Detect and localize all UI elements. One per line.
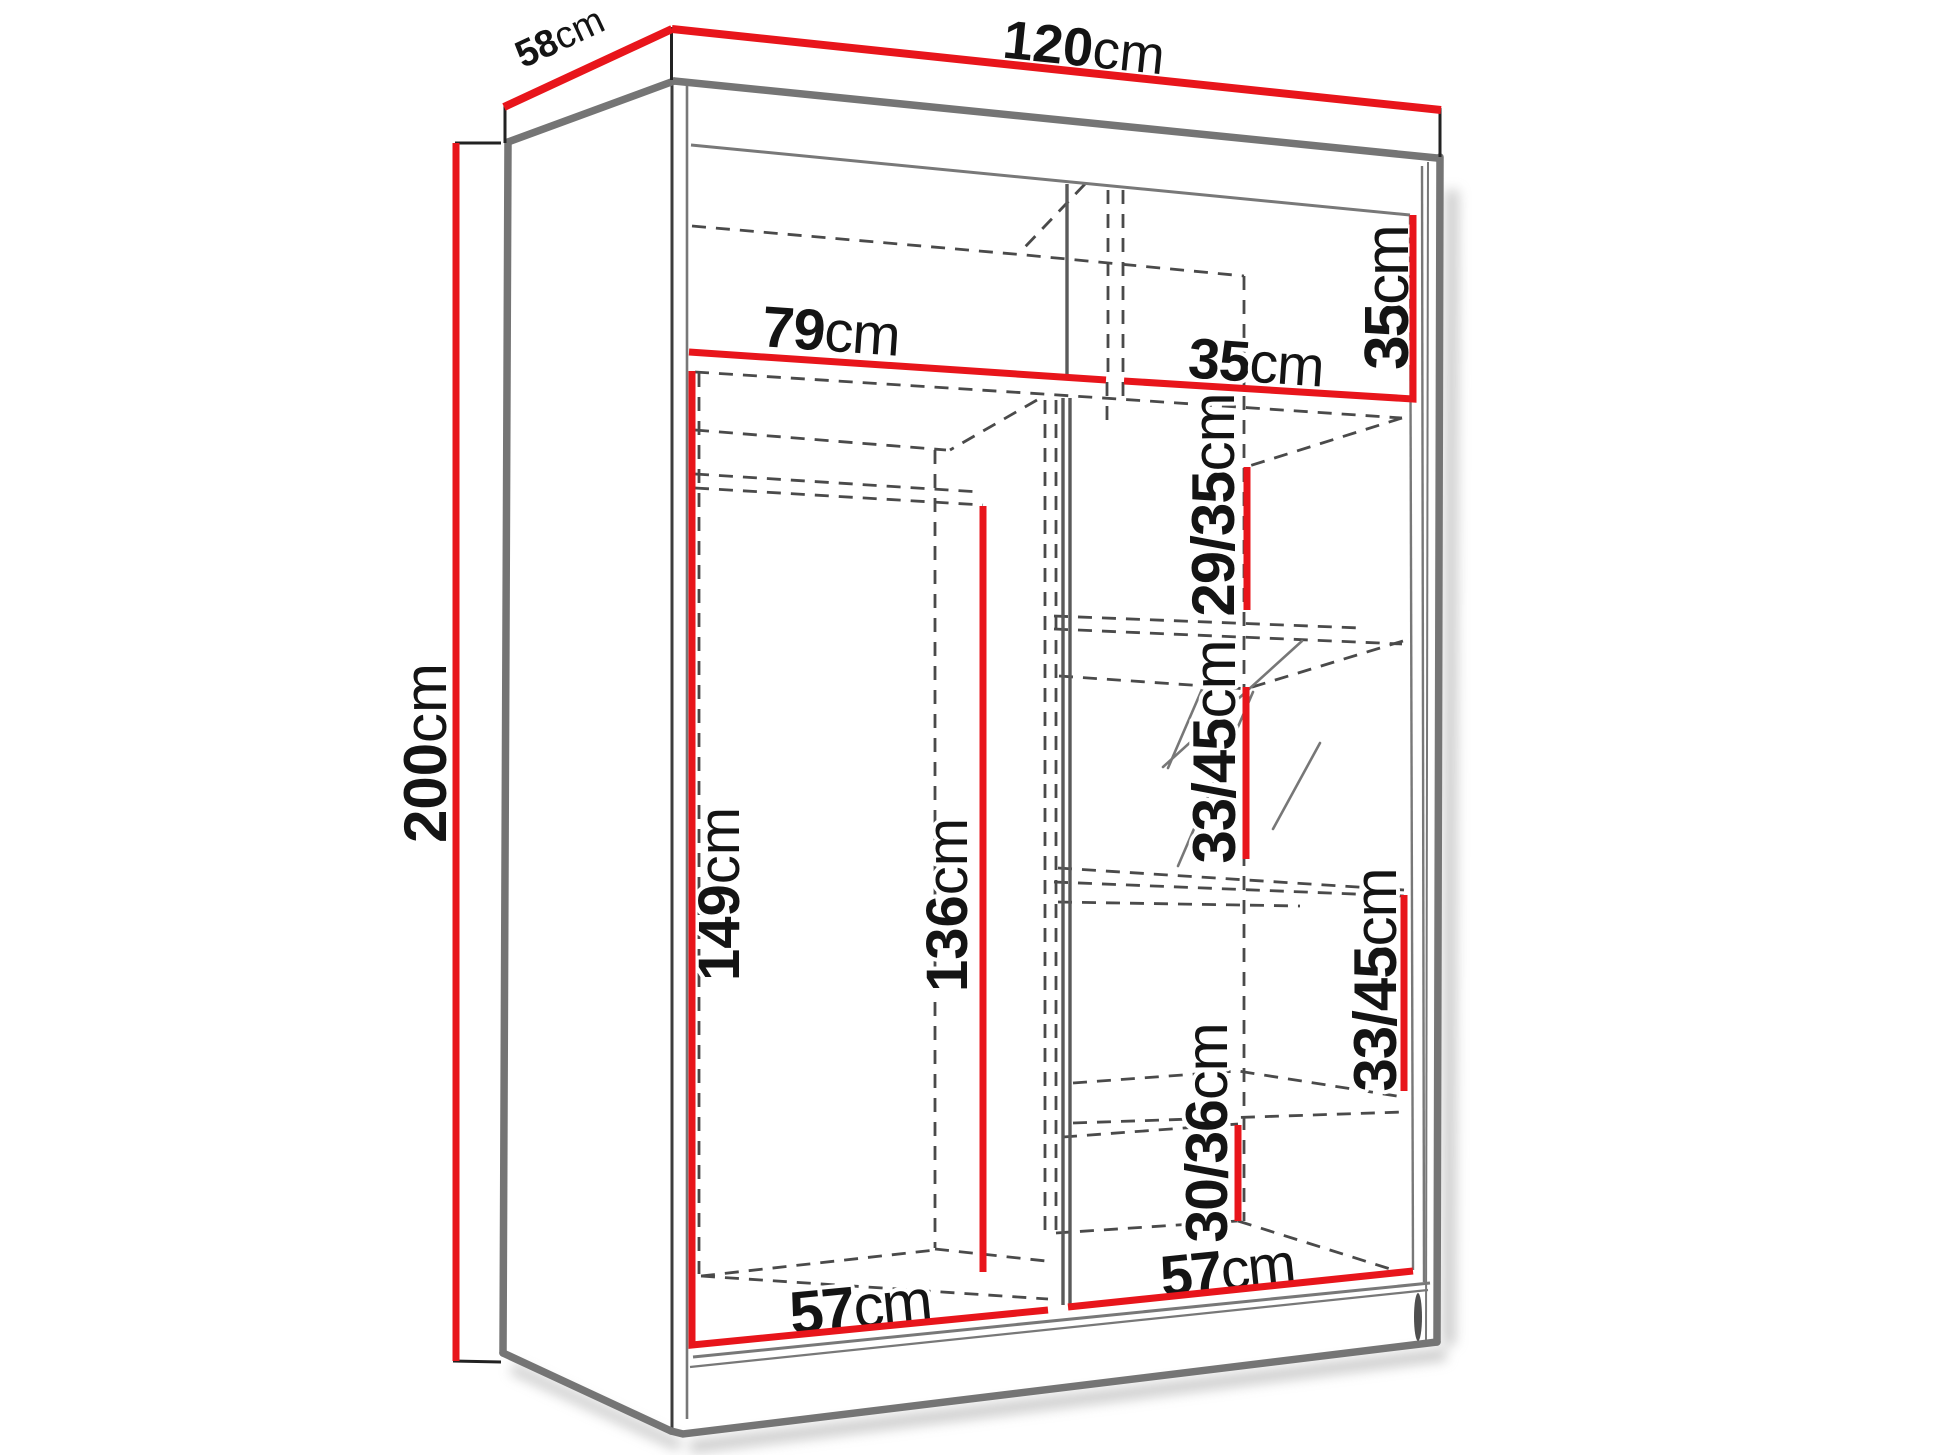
svg-text:200cm: 200cm bbox=[392, 663, 459, 843]
svg-text:30/36cm: 30/36cm bbox=[1174, 1023, 1240, 1242]
svg-text:136cm: 136cm bbox=[915, 818, 980, 992]
svg-text:149cm: 149cm bbox=[687, 807, 752, 981]
svg-text:29/35cm: 29/35cm bbox=[1180, 393, 1247, 616]
svg-text:33/45cm: 33/45cm bbox=[1342, 868, 1409, 1091]
svg-text:33/45cm: 33/45cm bbox=[1181, 640, 1248, 863]
